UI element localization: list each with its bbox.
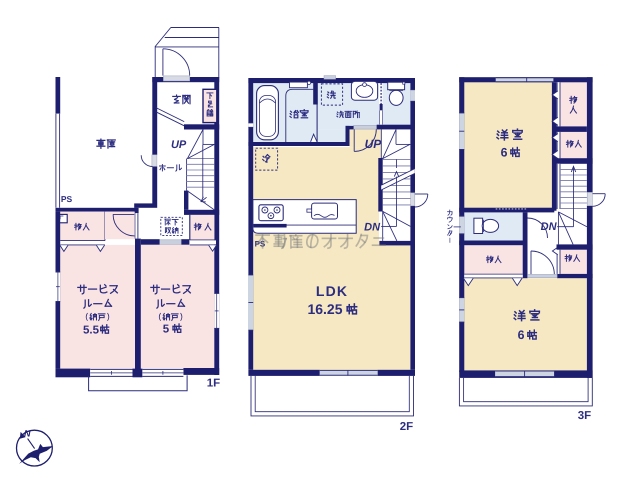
svg-text:UP: UP <box>365 137 383 151</box>
svg-text:2F: 2F <box>400 421 413 433</box>
svg-text:PS: PS <box>61 194 73 204</box>
svg-text:6: 6 <box>518 328 525 342</box>
svg-text:6: 6 <box>501 146 508 160</box>
svg-text:DN: DN <box>541 221 558 233</box>
svg-text:N: N <box>24 428 31 438</box>
svg-text:3F: 3F <box>578 410 591 422</box>
svg-text:5: 5 <box>163 324 170 336</box>
svg-text:1F: 1F <box>207 378 220 390</box>
svg-text:5.5: 5.5 <box>83 324 100 336</box>
svg-text:DN: DN <box>364 221 381 233</box>
svg-text:LDK: LDK <box>316 283 348 299</box>
svg-text:UP: UP <box>171 139 187 151</box>
svg-text:16.25: 16.25 <box>307 301 342 317</box>
